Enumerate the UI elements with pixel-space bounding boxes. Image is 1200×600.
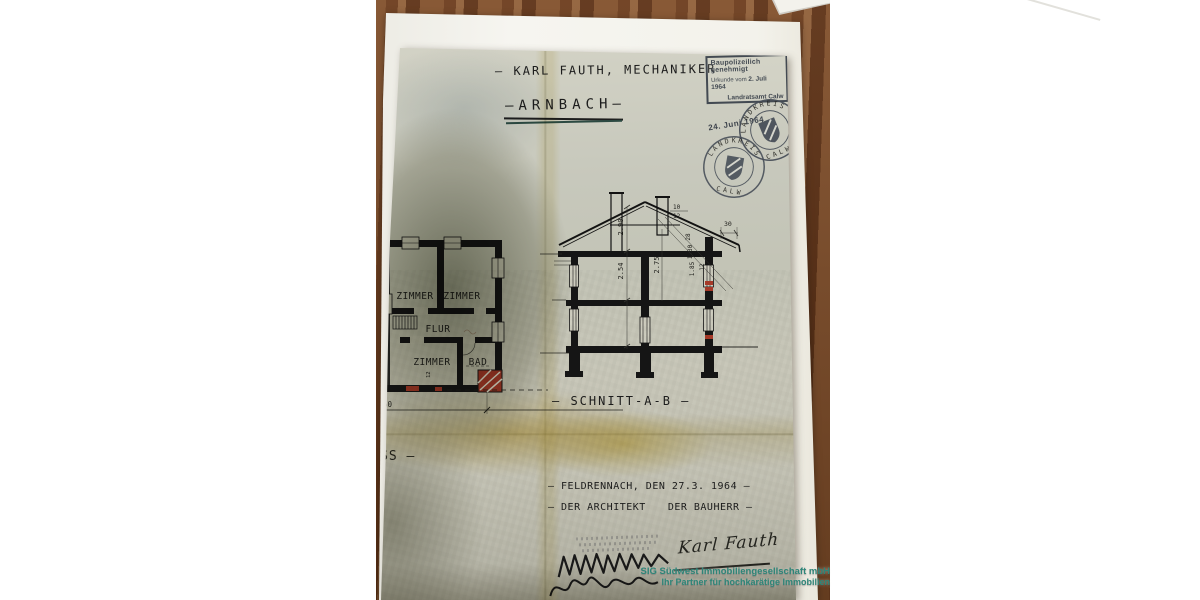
document-title: — KARL FAUTH, MECHANIKER (495, 62, 717, 78)
plan-pencil-note (464, 330, 476, 334)
dim-28: 28 (685, 233, 692, 241)
sheet-edge-line (1010, 0, 1101, 21)
dim-12b: 12 (673, 213, 681, 220)
desk-photo: — KARL FAUTH, MECHANIKER —ARNBACH— Baupo… (376, 0, 830, 600)
dim-185: 1.85 (689, 261, 696, 276)
section-foundations (565, 353, 718, 378)
roles-line: — DER ARCHITEKTDER BAUHERR — (548, 502, 753, 513)
agency-watermark: SIG Südwest Immobiliengesellschaft mbH I… (638, 566, 830, 587)
room-label: BAD (469, 357, 488, 368)
watermark-company: SIG Südwest Immobiliengesellschaft mbH (638, 566, 830, 577)
room-label: ZIMMER (443, 291, 480, 302)
blueprint-document-wrap: — KARL FAUTH, MECHANIKER —ARNBACH— Baupo… (380, 0, 800, 600)
dim-275: 2.75 (653, 257, 661, 274)
blueprint-document: — KARL FAUTH, MECHANIKER —ARNBACH— Baupo… (380, 0, 800, 600)
faint-stamp-row (576, 535, 660, 541)
room-label: FLUR (426, 324, 451, 335)
dim-290: 2.90 (617, 219, 625, 236)
location-underline-2 (506, 120, 622, 124)
builder-label: DER BAUHERR — (668, 502, 753, 513)
watermark-slogan: Ihr Partner für hochkarätige Immobilien (638, 577, 830, 587)
plan-stairs (393, 316, 417, 329)
room-label: ZIMMER (396, 291, 433, 302)
cross-section-drawing: 2.90 2.54 2.75 28 1.30 1.85 12 10 12 30 (540, 189, 760, 394)
cut-off-label: SS — (380, 449, 415, 464)
approval-stamp-line1: Baupolizeilich genehmigt (710, 58, 782, 74)
document-location: —ARNBACH— (505, 96, 626, 114)
room-label: ZIMMER (413, 357, 450, 368)
builder-signature: Karl Fauth (678, 530, 780, 559)
dim-12: 12 (699, 263, 706, 271)
place-date-line: — FELDRENNACH, DEN 27.3. 1964 — (548, 481, 750, 492)
plan-dim-60: 60 (383, 400, 393, 409)
dim-10: 10 (673, 204, 681, 211)
section-caption: — SCHNITT-A-B — (552, 394, 690, 408)
dim-254: 2.54 (617, 263, 625, 280)
crest-shield-icon (723, 155, 744, 181)
architect-label: — DER ARCHITEKT (548, 502, 646, 513)
approval-stamp-line2: Urkunde vom 2. Juli 1964 (711, 75, 783, 91)
plan-door-arc (463, 343, 475, 355)
dim-30: 30 (724, 220, 732, 228)
dim-130: 1.30 (687, 244, 694, 259)
plan-dim-12: 12 (426, 371, 432, 378)
